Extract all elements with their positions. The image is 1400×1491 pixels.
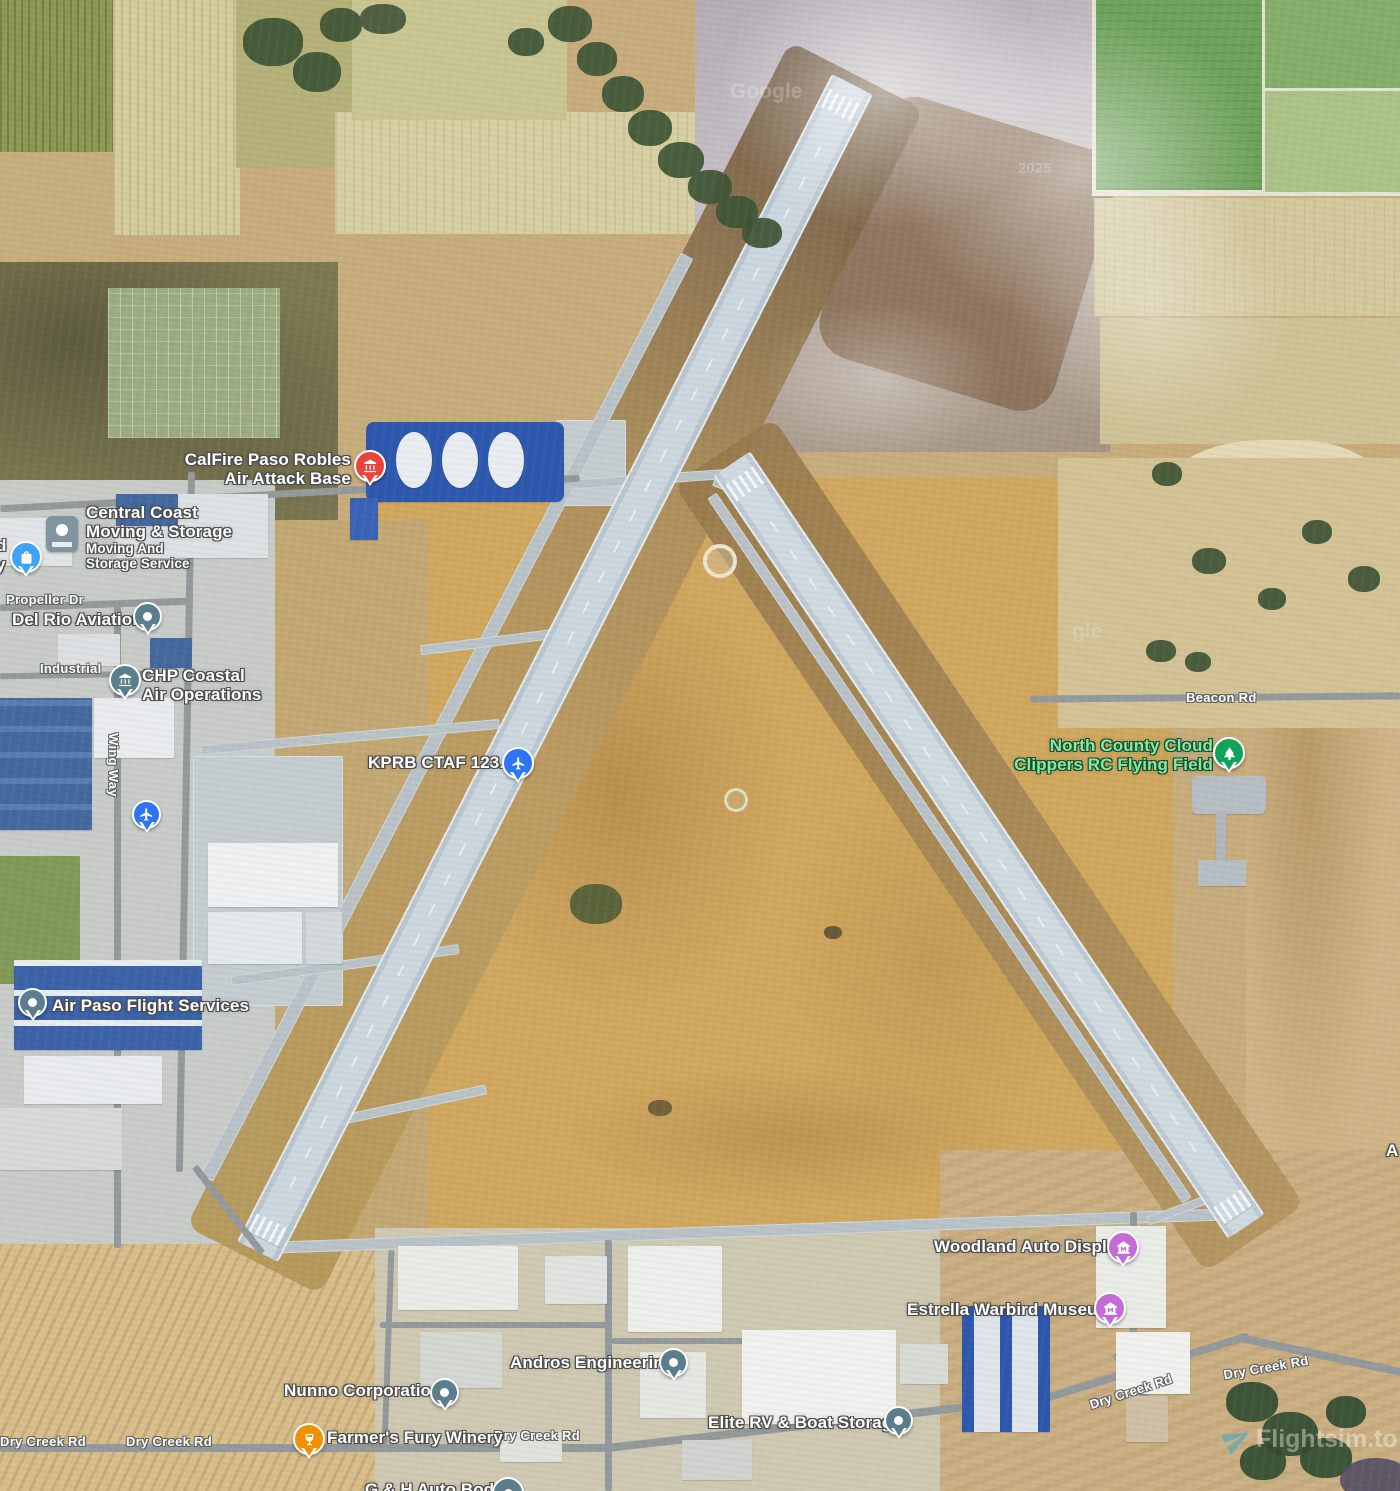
map-watermark: gle [1072, 620, 1102, 644]
building [962, 1306, 1050, 1432]
shopping-bag-icon [19, 550, 34, 565]
runway-threshold [726, 466, 765, 502]
road-label-wing-way: Wing Way [106, 733, 121, 797]
poi-label-line: CalFire Paso Robles [130, 450, 351, 469]
terrain-patch [113, 0, 240, 235]
poi-label-gh-auto[interactable]: G & H Auto Body [365, 1480, 504, 1491]
building [208, 912, 302, 964]
woodland-pin[interactable] [1107, 1231, 1139, 1263]
poi-label-nunno[interactable]: Nunno Corporation [284, 1381, 442, 1400]
cloud [760, 300, 1000, 460]
terrain-patch [108, 288, 280, 438]
road-label-industrial: Industrial [40, 661, 102, 676]
tree-cluster [1146, 640, 1176, 662]
poi-label-del-rio[interactable]: Del Rio Aviation [12, 610, 143, 629]
poi-label-line: Air Attack Base [130, 469, 351, 488]
tree-cluster [1152, 462, 1182, 486]
flightsim-watermark: Flightsim.to [1222, 1424, 1398, 1454]
poi-label-north-county[interactable]: North County Cloud Clippers RC Flying Fi… [1013, 736, 1213, 774]
road-label-dry-creek-3: Dry Creek Rd [494, 1428, 580, 1443]
terrain-patch [1058, 458, 1400, 728]
field-circle [724, 788, 748, 812]
elite-rv-pin[interactable] [884, 1406, 913, 1435]
road-label-dry-creek-2: Dry Creek Rd [126, 1434, 212, 1449]
tree-cluster [628, 110, 672, 146]
tree-cluster [360, 4, 406, 34]
logo-bar [52, 542, 72, 547]
poi-label-subline: Storage Service [86, 556, 232, 571]
tree-cluster [508, 28, 544, 56]
map-watermark-year: 2025 [1018, 160, 1051, 177]
building [628, 1246, 722, 1332]
tree-cluster [1302, 520, 1332, 544]
tree-cluster [293, 52, 341, 92]
building [306, 912, 342, 964]
building [0, 698, 92, 830]
poi-label-line: Air Operations [142, 685, 261, 704]
scrub-patch [570, 884, 622, 924]
tree-cluster [1348, 566, 1380, 592]
poi-label-chp[interactable]: CHP Coastal Air Operations [142, 666, 261, 704]
building [742, 1330, 896, 1424]
paper-plane-icon [1217, 1419, 1258, 1460]
nunno-pin[interactable] [430, 1378, 459, 1407]
building [900, 1344, 948, 1384]
tree-cluster [602, 76, 644, 112]
poi-label-air-paso[interactable]: Air Paso Flight Services [52, 996, 249, 1015]
satellite-map[interactable]: Google gle 2025 Flightsim.to CalFire Pas… [0, 0, 1400, 1491]
road [612, 1338, 752, 1344]
rc-field-pad [1198, 860, 1246, 886]
terrain-patch [0, 152, 114, 270]
museum-icon [1103, 1301, 1118, 1316]
building [350, 498, 378, 540]
runway-threshold [1213, 1189, 1252, 1225]
tree-cluster [577, 42, 617, 76]
building [1126, 1396, 1168, 1442]
dot-icon [440, 1388, 449, 1397]
building [208, 843, 338, 907]
retardant-pit [488, 432, 524, 488]
rc-field-pad [1192, 776, 1266, 814]
retardant-pit [442, 432, 478, 488]
dot-icon [894, 1416, 903, 1425]
wine-glass-icon [302, 1432, 317, 1447]
road-label-beacon-rd: Beacon Rd [1186, 690, 1257, 705]
calfire-pin[interactable] [354, 450, 386, 482]
tree-cluster [1258, 588, 1286, 610]
farmers-fury-pin[interactable] [293, 1423, 325, 1455]
poi-label-woodland[interactable]: Woodland Auto Display [934, 1237, 1126, 1256]
poi-label-kprb-ctaf[interactable]: KPRB CTAF 123.0 [368, 753, 514, 772]
museum-icon [1116, 1240, 1131, 1255]
map-watermark: Google [730, 80, 802, 104]
building [0, 1108, 122, 1170]
tree-icon [1222, 746, 1237, 761]
poi-label-line: Clippers RC Flying Field [1013, 755, 1213, 774]
building [420, 1332, 502, 1388]
tree-cluster [243, 18, 303, 66]
estrella-pin[interactable] [1094, 1292, 1126, 1324]
airplane-icon [139, 807, 154, 822]
poi-label-central-coast[interactable]: Central Coast Moving & Storage Moving An… [86, 503, 232, 571]
poi-label-line: Moving & Storage [86, 522, 232, 541]
scrub-patch [648, 1100, 672, 1116]
andros-pin[interactable] [659, 1348, 688, 1377]
tree-cluster [548, 6, 592, 42]
poi-label-line: CHP Coastal [142, 666, 261, 685]
air-paso-pin[interactable] [18, 988, 47, 1017]
tree-cluster [320, 8, 362, 42]
flightsim-watermark-text: Flightsim.to [1256, 1425, 1398, 1454]
building [545, 1256, 607, 1304]
poi-label-elite-rv[interactable]: Elite RV & Boat Storage [708, 1413, 902, 1432]
chp-pin[interactable] [109, 664, 141, 696]
business-logo[interactable] [46, 516, 78, 552]
north-county-pin[interactable] [1213, 737, 1245, 769]
poi-label-partial-left: d y [0, 536, 6, 574]
logo-dot [56, 524, 68, 536]
kprb-pin[interactable] [502, 747, 534, 779]
government-building-icon [363, 459, 378, 474]
poi-label-subline: Moving And [86, 541, 232, 556]
airplane-icon [511, 756, 526, 771]
airport-plane-pin[interactable] [132, 800, 161, 829]
poi-label-farmers-fury[interactable]: Farmer's Fury Winery [327, 1428, 503, 1447]
poi-label-estrella[interactable]: Estrella Warbird Museum [907, 1300, 1113, 1319]
retardant-pit [396, 432, 432, 488]
building [682, 1440, 752, 1480]
cloud [1010, 190, 1290, 430]
scrub-patch [824, 926, 842, 939]
road-label-propeller-dr: Propeller Dr [6, 592, 84, 607]
poi-label-partial-right: A [1386, 1141, 1398, 1160]
del-rio-pin[interactable] [133, 602, 162, 631]
road-label-dry-creek-1: Dry Creek Rd [0, 1434, 86, 1449]
dot-icon [143, 612, 152, 621]
terrain-patch [0, 1244, 400, 1491]
road [380, 1322, 608, 1328]
segmented-circle [703, 544, 737, 578]
rc-field-pad [1216, 812, 1226, 864]
building [398, 1246, 518, 1310]
dot-icon [28, 998, 37, 1007]
tree-cluster [1185, 652, 1211, 672]
poi-label-line: d [0, 536, 6, 555]
central-coast-pin[interactable] [10, 541, 42, 573]
poi-label-andros[interactable]: Andros Engineering [510, 1353, 674, 1372]
poi-label-calfire[interactable]: CalFire Paso Robles Air Attack Base [130, 450, 351, 488]
building [24, 1056, 162, 1104]
terrain-patch [1265, 91, 1400, 192]
poi-label-line: Central Coast [86, 503, 232, 522]
government-building-icon [118, 673, 133, 688]
building [150, 638, 192, 668]
poi-label-line: North County Cloud [1013, 736, 1213, 755]
dot-icon [669, 1358, 678, 1367]
terrain-patch [0, 0, 115, 155]
poi-label-line: y [0, 555, 6, 574]
tree-cluster [1192, 548, 1226, 574]
terrain-patch [1265, 0, 1400, 88]
